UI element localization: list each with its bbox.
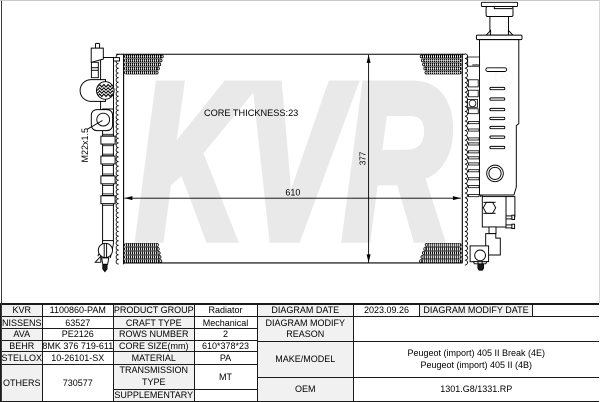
svg-text:377: 377	[359, 151, 368, 165]
svg-text:610: 610	[285, 188, 300, 198]
svg-text:KVR: KVR	[137, 38, 451, 284]
svg-text:CORE THICKNESS:23: CORE THICKNESS:23	[204, 108, 298, 118]
svg-text:M22x1.5: M22x1.5	[80, 128, 90, 163]
